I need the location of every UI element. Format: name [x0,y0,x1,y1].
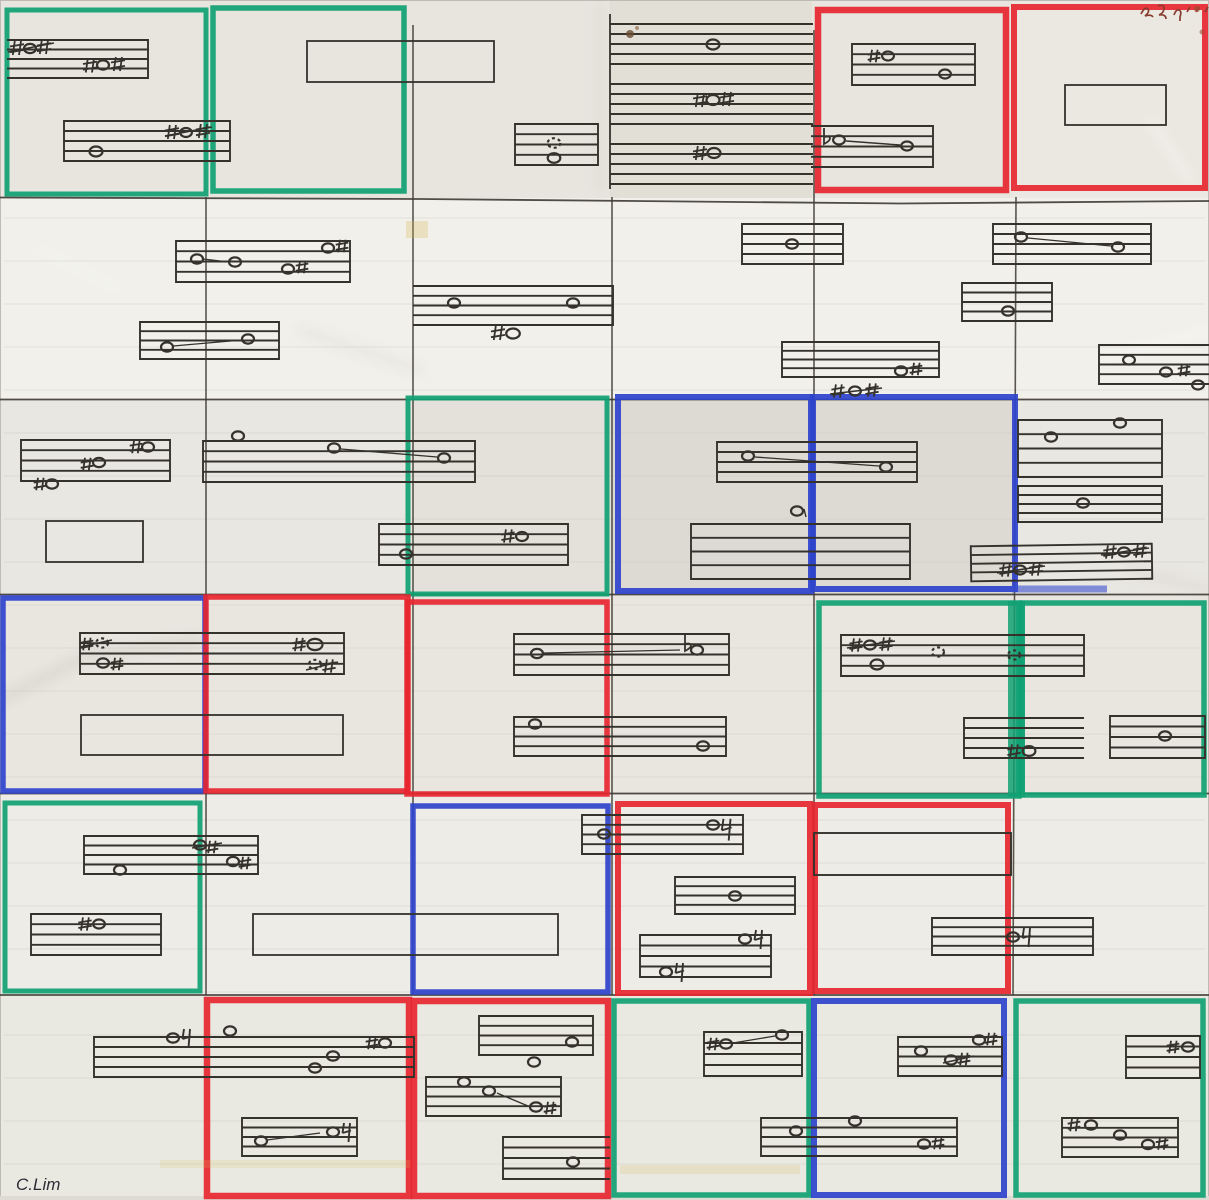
svg-text:C.Lim: C.Lim [16,1175,60,1194]
